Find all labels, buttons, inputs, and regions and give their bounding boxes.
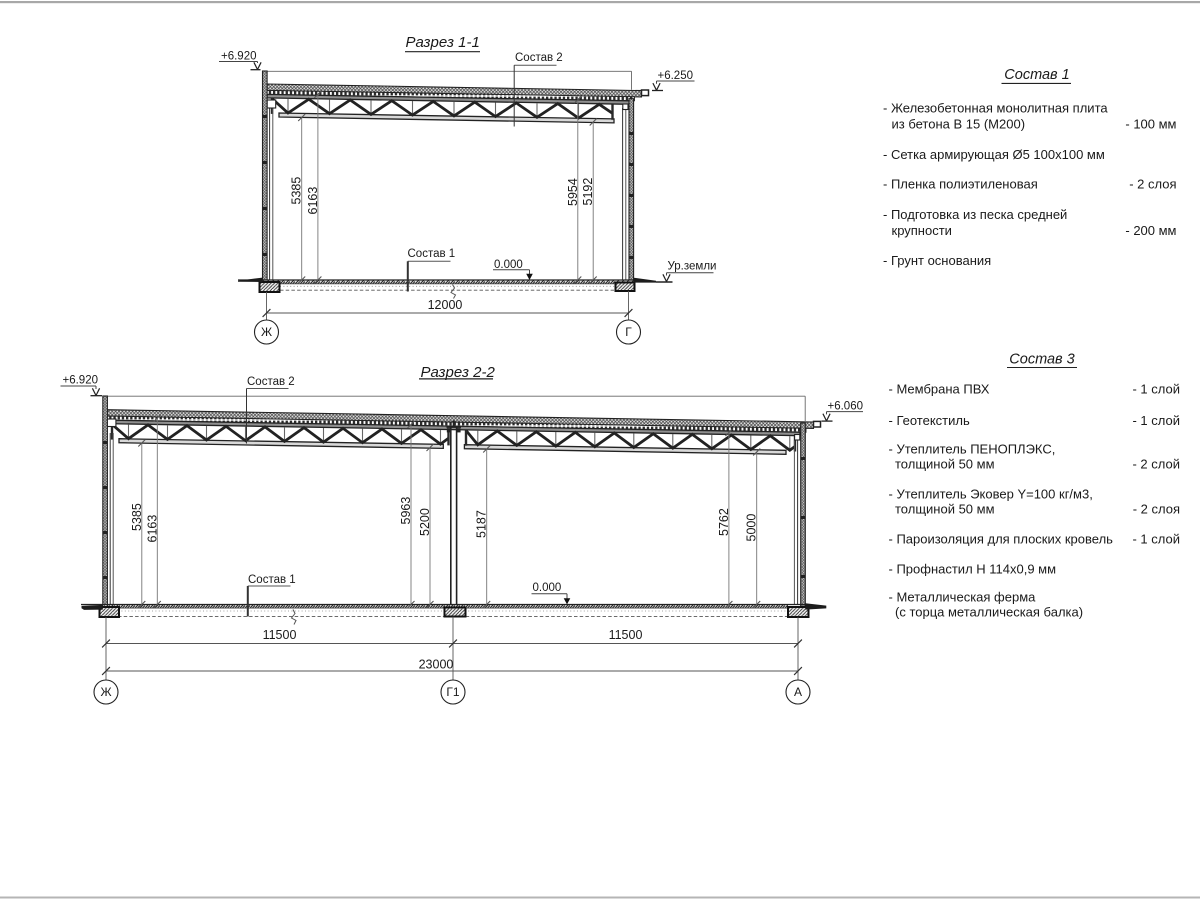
svg-text:- Подготовка из песка средней: - Подготовка из песка средней — [883, 207, 1067, 222]
svg-text:Состав 2: Состав 2 — [515, 52, 563, 64]
svg-text:- Пленка полиэтиленовая: - Пленка полиэтиленовая — [883, 177, 1038, 192]
svg-text:- Геотекстиль: - Геотекстиль — [889, 413, 970, 428]
svg-text:- 200 мм: - 200 мм — [1125, 223, 1176, 238]
svg-text:5192: 5192 — [581, 178, 595, 206]
svg-text:- Сетка армирующая Ø5 100х100: - Сетка армирующая Ø5 100х100 мм — [883, 147, 1105, 162]
svg-text:крупности: крупности — [892, 223, 952, 238]
svg-text:5762: 5762 — [717, 508, 731, 536]
svg-text:- Утеплитель ПЕНОПЛЭКС,: - Утеплитель ПЕНОПЛЭКС, — [889, 442, 1056, 457]
svg-text:толщиной 50 мм: толщиной 50 мм — [895, 502, 995, 517]
svg-text:5200: 5200 — [418, 508, 432, 536]
svg-text:- 1 слой: - 1 слой — [1132, 382, 1180, 397]
svg-text:- Железобетонная монолитная п: - Железобетонная монолитная плита — [883, 101, 1108, 116]
svg-text:- 1 слой: - 1 слой — [1132, 532, 1180, 547]
svg-text:- Пароизоляция для плоских кро: - Пароизоляция для плоских кровель — [889, 532, 1114, 547]
svg-text:- 2 слой: - 2 слой — [1132, 457, 1180, 472]
svg-text:- Металлическая ферма: - Металлическая ферма — [889, 590, 1037, 605]
svg-text:23000: 23000 — [419, 658, 454, 672]
svg-text:6163: 6163 — [306, 187, 320, 215]
svg-text:Состав 1: Состав 1 — [408, 248, 456, 260]
svg-text:толщиной 50 мм: толщиной 50 мм — [895, 457, 995, 472]
svg-text:12000: 12000 — [428, 298, 463, 312]
svg-text:Ж: Ж — [100, 685, 111, 699]
svg-text:Состав 3: Состав 3 — [1009, 352, 1074, 368]
svg-text:Г1: Г1 — [446, 685, 459, 699]
svg-text:- 1 слой: - 1 слой — [1132, 413, 1180, 428]
svg-text:Состав 1: Состав 1 — [1004, 67, 1069, 83]
svg-text:+6.920: +6.920 — [63, 375, 99, 387]
svg-text:0.000: 0.000 — [494, 259, 523, 271]
svg-text:+6.250: +6.250 — [658, 70, 694, 82]
svg-text:- Профнастил Н 114х0,9 мм: - Профнастил Н 114х0,9 мм — [889, 562, 1057, 577]
svg-text:5000: 5000 — [745, 514, 759, 542]
svg-text:11500: 11500 — [263, 628, 297, 642]
svg-text:5954: 5954 — [566, 178, 580, 206]
svg-text:Состав 1: Состав 1 — [248, 574, 296, 586]
svg-text:- 100 мм: - 100 мм — [1125, 117, 1176, 132]
svg-text:- Утеплитель Эковер Y=100 кг/м: - Утеплитель Эковер Y=100 кг/м3, — [889, 487, 1093, 502]
svg-text:Ур.земли: Ур.земли — [668, 261, 717, 273]
svg-text:- Грунт основания: - Грунт основания — [883, 253, 991, 268]
svg-text:- 2 слоя: - 2 слоя — [1133, 502, 1180, 517]
svg-text:6163: 6163 — [145, 515, 159, 543]
svg-text:+6.920: +6.920 — [221, 51, 257, 63]
svg-text:Ж: Ж — [261, 325, 272, 339]
svg-text:5385: 5385 — [290, 177, 304, 205]
svg-text:Состав 2: Состав 2 — [247, 376, 295, 388]
svg-text:- Мембрана ПВХ: - Мембрана ПВХ — [889, 382, 990, 397]
svg-text:11500: 11500 — [609, 628, 643, 642]
svg-text:0.000: 0.000 — [533, 582, 562, 594]
svg-text:(с торца металлическая балка): (с торца металлическая балка) — [895, 605, 1083, 620]
svg-text:5963: 5963 — [399, 497, 413, 525]
svg-text:- 2 слоя: - 2 слоя — [1129, 177, 1176, 192]
svg-text:из бетона В 15 (М200): из бетона В 15 (М200) — [892, 117, 1026, 132]
svg-text:5187: 5187 — [475, 510, 489, 538]
svg-text:Г: Г — [625, 325, 632, 339]
svg-text:Разрез 1-1: Разрез 1-1 — [406, 34, 480, 51]
svg-text:5385: 5385 — [130, 503, 144, 531]
svg-text:+6.060: +6.060 — [828, 401, 864, 413]
svg-text:А: А — [794, 685, 802, 699]
